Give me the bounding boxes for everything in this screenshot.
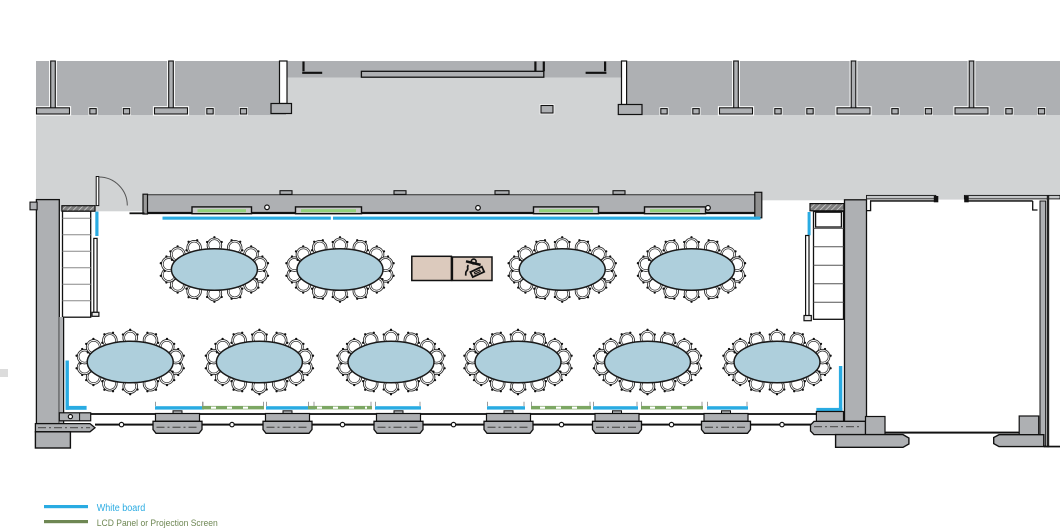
svg-text:LCD Panel or Projection Screen: LCD Panel or Projection Screen [97, 518, 218, 528]
svg-text:White board: White board [97, 503, 146, 514]
